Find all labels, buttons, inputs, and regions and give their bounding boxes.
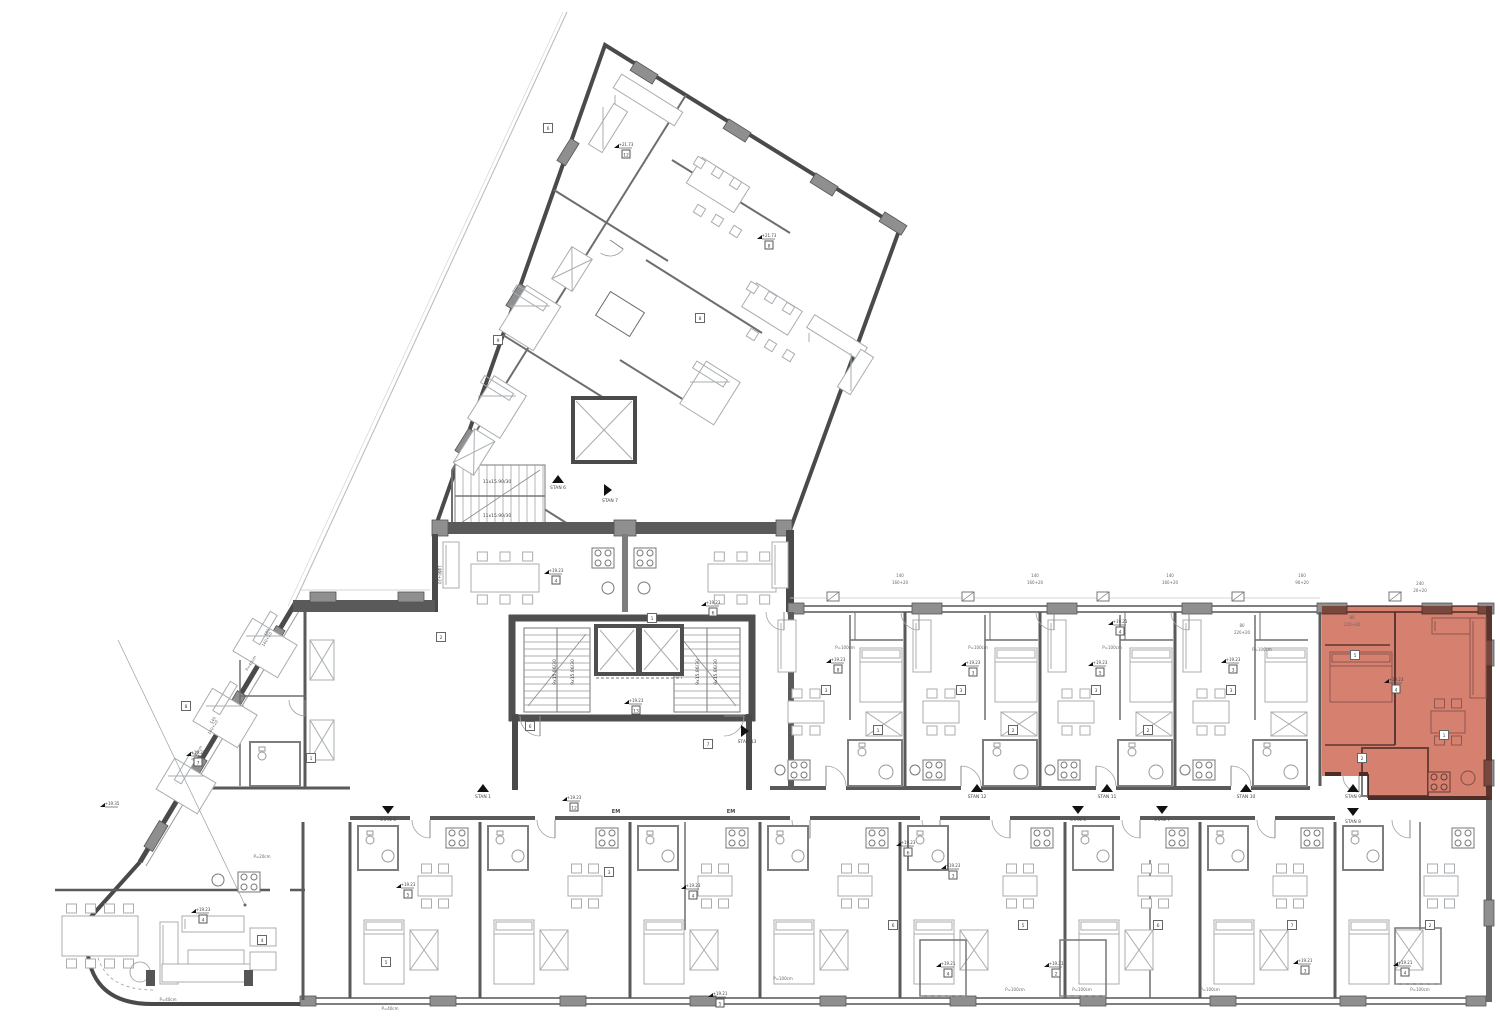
room-id-number: 4	[692, 894, 695, 900]
kitchen-sink	[212, 874, 224, 886]
door-gap	[990, 814, 1010, 822]
room-number: 7	[1291, 923, 1294, 929]
dining-table	[1273, 876, 1307, 896]
bathroom	[488, 826, 528, 870]
pillar	[244, 970, 253, 986]
dining-table	[788, 701, 824, 723]
chair	[859, 864, 869, 873]
room-number: 7	[707, 742, 710, 748]
kitchen-sink	[1180, 765, 1190, 775]
elevation-value: +19.21	[1113, 619, 1128, 624]
room-id-number: 6	[712, 611, 715, 617]
door-gap	[410, 814, 430, 822]
room-id-number: 4	[202, 918, 205, 924]
chair	[589, 899, 599, 908]
bathroom	[1253, 740, 1307, 786]
kitchen-sink	[910, 765, 920, 775]
chair	[1007, 899, 1017, 908]
chair	[477, 552, 487, 561]
room-number: 3	[825, 688, 828, 694]
door-swing	[1122, 820, 1140, 838]
elevation-value: +19.23	[706, 600, 721, 605]
room-number: 1	[310, 756, 313, 762]
facade-pier	[912, 603, 942, 614]
chair	[86, 959, 96, 968]
chair	[792, 689, 802, 698]
elevation-value: +19.23	[686, 883, 701, 888]
chair	[1277, 899, 1287, 908]
chair	[1080, 689, 1090, 698]
room-number: 6	[547, 126, 550, 132]
room-number: 3	[608, 870, 611, 876]
parapet-label: P=40cm	[382, 1006, 399, 1011]
elevation-value: +21.73	[762, 233, 777, 238]
facade-pier	[398, 592, 424, 602]
room-id-number: 3	[1304, 969, 1307, 975]
stan-entry-label: STAN 11	[1098, 794, 1117, 800]
room-number: 8	[185, 704, 188, 710]
stair-dimension-label: 9x15.86/30	[570, 659, 576, 685]
elevation-value: +19.23	[196, 907, 211, 912]
room-id-number: 4	[1395, 688, 1398, 694]
bathroom	[1343, 826, 1383, 870]
bathroom	[848, 740, 902, 786]
elevation-value: +19.21	[1049, 961, 1064, 966]
chair	[124, 904, 134, 913]
chair	[1294, 899, 1304, 908]
chair	[1197, 726, 1207, 735]
bed	[995, 648, 1037, 702]
chair	[523, 552, 533, 561]
chair	[1215, 689, 1225, 698]
chair	[945, 689, 955, 698]
floor-plan-sheet: STAN 3STAN 1STAN 13STAN 12STAN 5STAN 11S…	[0, 0, 1500, 1030]
chair	[1445, 864, 1455, 873]
stan-entry-label: STAN 5	[1070, 817, 1086, 823]
room-number: 2	[1012, 728, 1015, 734]
elevation-value: +19.23	[549, 568, 564, 573]
room-number: 2	[440, 635, 443, 641]
chair	[810, 689, 820, 698]
chair	[1142, 899, 1152, 908]
facade-pier	[1484, 900, 1494, 926]
room-id-number: 3	[952, 874, 955, 880]
stair-dimension-label: 11x15.90/30	[483, 479, 512, 485]
bed	[1265, 648, 1307, 702]
elevation-value: +19.23	[946, 863, 961, 868]
chair	[572, 864, 582, 873]
chair	[702, 864, 712, 873]
chair	[500, 552, 510, 561]
door-gap	[790, 814, 810, 822]
parapet-label: P=20cm	[254, 854, 271, 859]
chair	[86, 904, 96, 913]
chair	[67, 904, 77, 913]
core-right-stub	[746, 714, 752, 790]
door-gap	[1390, 814, 1410, 822]
facade-pier	[690, 996, 716, 1006]
stan-entry-label: STAN 10	[1237, 794, 1256, 800]
room-id-number: 8	[768, 244, 771, 250]
room-id-number: 7	[197, 761, 200, 767]
dimension-top: 140	[896, 573, 904, 578]
room-id-number: 5	[1099, 671, 1102, 677]
elevation-value: +19.21	[1398, 960, 1413, 965]
chair	[1159, 899, 1169, 908]
room-number: 2	[1429, 923, 1432, 929]
room-number: 1	[1443, 733, 1446, 739]
chair	[1062, 726, 1072, 735]
stan-entry-label: STAN 12	[968, 794, 987, 800]
facade-pier	[1182, 603, 1212, 614]
elevation-value: +19.35	[105, 801, 120, 806]
dimension-bottom: 90+20	[1295, 580, 1309, 585]
dimension-bottom: 160+20	[892, 580, 909, 585]
door-gap	[920, 814, 940, 822]
dining-table	[1003, 876, 1037, 896]
facade-pier	[820, 996, 846, 1006]
stan-entry-label: STAN 7	[1154, 817, 1170, 823]
chair	[572, 899, 582, 908]
room-id-number: 12	[571, 806, 577, 812]
sofa	[772, 542, 788, 588]
chair	[719, 899, 729, 908]
dining-table	[698, 876, 732, 896]
dimension-bottom: 220+20	[1234, 630, 1251, 635]
elevation-value: +19.23	[966, 660, 981, 665]
room-id-number: 4	[947, 972, 950, 978]
door-swing	[961, 766, 981, 786]
door-gap	[535, 814, 555, 822]
room-number: 9	[497, 338, 500, 344]
room-id-number: 12	[623, 153, 629, 159]
room-number: 2	[1361, 756, 1364, 762]
room-number: 5	[1022, 923, 1025, 929]
room-number: 6	[529, 724, 532, 730]
room-id-number: 3	[1232, 668, 1235, 674]
chair	[439, 864, 449, 873]
dimension-top: 140	[1031, 573, 1039, 578]
armchair	[250, 952, 276, 970]
bed	[156, 758, 216, 814]
band-top-wall	[432, 522, 792, 534]
chair	[1007, 864, 1017, 873]
dimension-top: 80	[1349, 615, 1355, 620]
elevation-value: +19.23	[1093, 660, 1108, 665]
bathroom	[638, 826, 678, 870]
elevation-value: +19.21	[1298, 958, 1313, 963]
room-number: 3	[960, 688, 963, 694]
door-swing	[992, 820, 1010, 838]
chair	[927, 689, 937, 698]
room-number: 1	[651, 616, 654, 622]
bathroom	[358, 826, 398, 870]
chair	[737, 552, 747, 561]
facade-pier	[310, 592, 336, 602]
bathroom	[983, 740, 1037, 786]
dining-table	[1424, 876, 1458, 896]
parapet-label: P=100cm	[968, 645, 988, 650]
stan-entry-label: STAN 3	[380, 817, 396, 823]
chair	[1062, 689, 1072, 698]
dining-table	[923, 701, 959, 723]
room-id-number: 5	[719, 1002, 722, 1008]
dining-table	[838, 876, 872, 896]
room-number: 6	[892, 923, 895, 929]
chair	[1197, 689, 1207, 698]
door-swing	[1096, 766, 1116, 786]
dimension-top: 240	[1416, 581, 1424, 586]
parapet-label: P=100cm	[773, 976, 793, 981]
facade-pier	[560, 996, 586, 1006]
stan-entry-label: STAN 9	[1345, 794, 1361, 800]
entry-direction-triangle	[1072, 806, 1084, 814]
elevation-value: +19.21	[713, 991, 728, 996]
stan-entry-label: STAN 1	[475, 794, 491, 800]
chair	[105, 904, 115, 913]
chair	[1142, 864, 1152, 873]
chair	[842, 864, 852, 873]
bathroom	[1073, 826, 1113, 870]
elevation-value: +19.23	[831, 657, 846, 662]
dimension-bottom: 20+20	[1413, 588, 1427, 593]
chair	[1024, 899, 1034, 908]
chair	[702, 899, 712, 908]
parapet-label: P=100cm	[1410, 987, 1430, 992]
dimension-bottom: 160+20	[1027, 580, 1044, 585]
bed	[1130, 648, 1172, 702]
bathroom	[1118, 740, 1172, 786]
chair	[1215, 726, 1225, 735]
parapet-label: P=40cm	[160, 997, 177, 1002]
stair-dimension-label: 9x15.86/30	[713, 659, 719, 685]
chair	[737, 595, 747, 604]
facade-pier	[432, 520, 448, 536]
entry-direction-triangle	[477, 784, 489, 792]
chair	[1159, 864, 1169, 873]
stan-entry-label: STAN 7	[602, 498, 618, 504]
facade-pier	[1466, 996, 1486, 1006]
elevation-value: +19.23	[401, 882, 416, 887]
entry-direction-triangle	[382, 806, 394, 814]
stair-dimension-label: 9x15.86/30	[552, 659, 558, 685]
dining-table	[1138, 876, 1172, 896]
dimension-top: 80	[1239, 623, 1245, 628]
entry-direction-triangle	[1240, 784, 1252, 792]
dining-table	[418, 876, 452, 896]
chair	[859, 899, 869, 908]
kitchen-sink	[602, 582, 614, 594]
stair-dimension-label: 11x15.90/30	[483, 513, 512, 519]
dining-table	[1193, 701, 1229, 723]
chair	[1294, 864, 1304, 873]
chair	[477, 595, 487, 604]
elevation-value: +19.23	[1226, 657, 1241, 662]
chair	[589, 864, 599, 873]
bed	[233, 618, 297, 677]
elevation-value: +19.21	[941, 961, 956, 966]
room-id-number: 3	[972, 671, 975, 677]
door-swing	[289, 700, 305, 716]
room-number: 8	[699, 316, 702, 322]
chair	[422, 864, 432, 873]
sofa	[443, 542, 459, 588]
bathroom	[908, 826, 948, 870]
parapet-label: P=100cm	[1200, 987, 1220, 992]
dining-table	[568, 876, 602, 896]
stan-entry-label: STAN 8	[1345, 819, 1361, 825]
door-swing	[1231, 766, 1251, 786]
elevation-value: +19.23	[901, 840, 916, 845]
room-id-number: 2	[1055, 972, 1058, 978]
dimension-bottom: 220+20	[1344, 622, 1361, 627]
room-id-number: 5	[407, 893, 410, 899]
stair-dimension-label: 9x15.86/30	[695, 659, 701, 685]
elevation-value: +19.23	[629, 698, 644, 703]
chair	[927, 726, 937, 735]
chair	[842, 899, 852, 908]
parapet-label: P=100cm	[1252, 647, 1272, 652]
room-id-number: 4	[1404, 971, 1407, 977]
chair	[1080, 726, 1090, 735]
room-id-number: 4	[1119, 630, 1122, 636]
facade-pier	[614, 520, 636, 536]
facade-pier	[1047, 603, 1077, 614]
room-id-number: 13	[633, 709, 639, 715]
sofa	[182, 916, 244, 932]
door-swing	[537, 820, 555, 838]
dining-table	[62, 916, 138, 956]
bathroom	[1208, 826, 1248, 870]
bed	[860, 648, 902, 702]
dining-table	[471, 564, 539, 592]
room-number: 5	[385, 960, 388, 966]
chair	[422, 899, 432, 908]
chair	[500, 595, 510, 604]
door-swing	[412, 820, 430, 838]
kitchen-sink	[1045, 765, 1055, 775]
room-id-number: 4	[555, 579, 558, 585]
door-gap	[1255, 814, 1275, 822]
room-id-number: 8	[837, 668, 840, 674]
sofa-row	[162, 964, 250, 982]
band-divider	[622, 534, 628, 612]
em-label: EM	[612, 809, 620, 815]
facade-pier	[430, 996, 456, 1006]
entry-direction-triangle	[1101, 784, 1113, 792]
dining-table	[708, 564, 776, 592]
core-left-stub	[512, 714, 518, 790]
pillar	[146, 970, 155, 986]
chair	[714, 552, 724, 561]
elevation-value: +19.23	[1389, 677, 1404, 682]
chair	[67, 959, 77, 968]
chair	[945, 726, 955, 735]
room-number: 3	[1095, 688, 1098, 694]
parapet-label: P=100cm	[1102, 645, 1122, 650]
room-id-number: 6	[907, 851, 910, 857]
dimension-bottom: 160+20	[437, 568, 442, 585]
facade-pier	[1340, 996, 1366, 1006]
leader-dot	[244, 904, 247, 907]
highlighted-unit-overlay[interactable]	[1322, 606, 1492, 800]
dimension-bottom: 160+20	[1162, 580, 1179, 585]
kitchen-sink	[775, 765, 785, 775]
floor-plan-drawing: STAN 3STAN 1STAN 13STAN 12STAN 5STAN 11S…	[0, 0, 1500, 1030]
chair	[792, 726, 802, 735]
stan-entry-label: STAN 6	[550, 485, 566, 491]
door-swing	[1257, 820, 1275, 838]
room-number: 4	[261, 938, 264, 944]
chair	[1277, 864, 1287, 873]
dining-table	[1058, 701, 1094, 723]
room-number: 5	[1354, 653, 1357, 659]
bathroom	[768, 826, 808, 870]
em-label: EM	[727, 809, 735, 815]
door-swing	[1392, 820, 1410, 838]
dimension-top: 140	[1166, 573, 1174, 578]
bathroom	[250, 742, 300, 786]
parapet-label: P=100cm	[1005, 987, 1025, 992]
entry-direction-triangle	[1156, 806, 1168, 814]
elevation-value: +21.73	[619, 142, 634, 147]
room-number: 6	[1157, 923, 1160, 929]
door-gap	[1120, 814, 1140, 822]
chair	[1445, 899, 1455, 908]
facade-pier	[1210, 996, 1236, 1006]
chair	[105, 959, 115, 968]
room-number: 1	[877, 728, 880, 734]
chair	[810, 726, 820, 735]
kitchen-sink	[638, 582, 650, 594]
elevation-value: +19.23	[567, 795, 582, 800]
door-swing	[826, 766, 846, 786]
chair	[760, 595, 770, 604]
chair	[719, 864, 729, 873]
stan-entry-label: STAN 13	[738, 739, 757, 745]
entry-direction-triangle	[1347, 808, 1359, 816]
chair	[1428, 864, 1438, 873]
chair	[1428, 899, 1438, 908]
room-number: 3	[1230, 688, 1233, 694]
facade-pier	[950, 996, 976, 1006]
chair	[523, 595, 533, 604]
parapet-label: P=100cm	[1072, 987, 1092, 992]
chair	[1024, 864, 1034, 873]
facade-pier	[1080, 996, 1106, 1006]
dimension-top: 160	[1298, 573, 1306, 578]
room-number: 2	[1147, 728, 1150, 734]
chair	[760, 552, 770, 561]
parapet-label: P=100cm	[835, 645, 855, 650]
chair	[439, 899, 449, 908]
